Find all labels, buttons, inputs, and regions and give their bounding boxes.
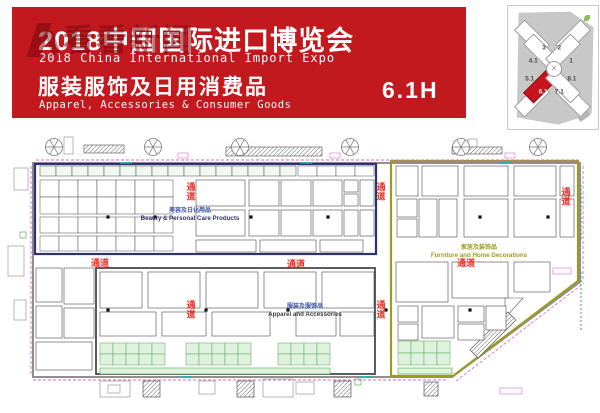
booth-cell — [97, 180, 116, 197]
aisle-label: 通道 — [287, 258, 305, 269]
exit-mark — [20, 232, 26, 238]
aisle-label: 通 — [186, 299, 195, 310]
booth-cell — [126, 343, 139, 354]
structural-column — [546, 215, 549, 218]
facility — [8, 246, 24, 276]
facility — [199, 381, 215, 394]
booth — [249, 210, 279, 236]
booth-cell — [437, 353, 450, 365]
booth-cell — [97, 197, 116, 214]
booth-cell — [238, 343, 251, 354]
facility — [14, 168, 28, 190]
section-label: Beauty & Personal Care Products — [141, 215, 240, 222]
booth-cell — [200, 166, 216, 176]
booth-cell — [437, 341, 450, 353]
booth-cell — [100, 354, 113, 365]
section-label: Furniture and Home Decorations — [431, 252, 528, 259]
door-mark — [178, 153, 188, 158]
booth — [397, 199, 417, 217]
booth-cell — [212, 354, 225, 365]
booth-cell — [88, 166, 104, 176]
booth-cell — [40, 236, 59, 251]
booth — [36, 268, 62, 302]
booth-cell — [238, 354, 251, 365]
door-mark — [330, 153, 340, 158]
booth — [464, 199, 508, 237]
venue-center-plaza: ✕ — [546, 61, 562, 77]
booth — [64, 308, 94, 338]
booth-cell — [225, 343, 238, 354]
door-mark — [500, 388, 522, 394]
booth-cell — [40, 197, 59, 214]
booth-cell — [212, 343, 225, 354]
title-banner: 2018中国国际进口博览会 2018 China International I… — [12, 7, 466, 118]
category-title-cn: 服装服饰及日用消费品 — [38, 71, 268, 101]
booth-cell — [97, 236, 116, 251]
section-label: 美容及日化用品 — [168, 206, 211, 214]
facility — [263, 379, 293, 397]
booth-cell — [113, 343, 126, 354]
aisle-label: 通道 — [91, 257, 109, 268]
minimap-hall-label: 8.1 — [567, 75, 576, 82]
booth — [249, 180, 279, 206]
booth-cell — [291, 343, 304, 354]
minimap-hall-label: 6.1 — [539, 89, 548, 96]
booth-cell — [100, 343, 113, 354]
structural-column — [249, 215, 252, 218]
booth — [344, 210, 358, 236]
expo-floorplan-page: { "banner":{ "title_cn":"2018中国国际进口博览会",… — [0, 0, 600, 413]
structural-column — [106, 215, 109, 218]
booth-cell — [336, 166, 355, 176]
booth-cell — [199, 343, 212, 354]
booth — [36, 306, 62, 338]
booth-cell — [40, 166, 56, 176]
booth-cell — [78, 180, 97, 197]
booth-cell — [139, 343, 152, 354]
booth-cell — [411, 353, 424, 365]
booth-cell — [186, 354, 199, 365]
booth-cell — [152, 354, 165, 365]
aisle-label: 道 — [376, 191, 385, 202]
booth-cell — [59, 236, 78, 251]
booth-cell — [78, 236, 97, 251]
booth-cell — [304, 354, 317, 365]
booth — [464, 166, 508, 196]
booth — [196, 240, 256, 252]
booth-cell — [154, 180, 173, 197]
booth — [340, 312, 374, 336]
aisle-label: 通 — [561, 186, 570, 197]
booth-cell — [304, 343, 317, 354]
facility — [64, 137, 73, 154]
booth-cell — [126, 354, 139, 365]
minimap-hall-label: 7.1 — [555, 89, 564, 96]
booth-cell — [135, 180, 154, 197]
booth-cell — [78, 197, 97, 214]
green-strip — [100, 368, 330, 374]
booth-cell — [116, 197, 135, 214]
booth — [36, 342, 92, 370]
booth-cell — [291, 354, 304, 365]
booth-cell — [59, 217, 78, 233]
minimap-hall-label: 5.1 — [525, 75, 534, 82]
aisle-label: 通 — [376, 299, 385, 310]
booth — [514, 199, 556, 237]
booth — [514, 166, 556, 196]
booth — [397, 219, 417, 237]
booth-cell — [225, 354, 238, 365]
booth — [322, 272, 374, 308]
booth — [486, 306, 506, 330]
booth — [100, 272, 142, 308]
booth — [422, 166, 458, 196]
aisle-label: 通 — [186, 181, 195, 192]
booth — [419, 199, 437, 237]
booth — [422, 306, 454, 338]
booth — [260, 240, 316, 252]
booth-cell — [317, 354, 330, 365]
door-mark — [505, 153, 515, 158]
booth-cell — [186, 343, 199, 354]
booth-cell — [355, 166, 374, 176]
booth-cell — [264, 166, 280, 176]
minimap-hall-label: 4.1 — [529, 58, 538, 65]
green-strip — [398, 368, 452, 374]
booth — [281, 180, 311, 206]
structural-column — [478, 215, 481, 218]
booth — [320, 240, 363, 252]
booth — [281, 210, 311, 236]
booth-cell — [116, 236, 135, 251]
aisle-label: 道 — [186, 309, 195, 320]
minimap-hall-label: 1 — [569, 58, 573, 65]
booth — [458, 324, 484, 340]
booth-cell — [168, 166, 184, 176]
aisle-label: 道 — [561, 196, 570, 207]
floor-plan: 美容及日化用品Beauty & Personal Care Products服装… — [0, 130, 600, 413]
booth-cell — [232, 166, 248, 176]
escalator — [424, 382, 438, 396]
booth — [398, 306, 418, 322]
booth-cell — [152, 166, 168, 176]
booth-cell — [40, 217, 59, 233]
booth-cell — [56, 166, 72, 176]
booth — [344, 194, 358, 206]
watermark-logo-icon — [44, 31, 62, 55]
booth — [100, 312, 156, 336]
facility — [108, 385, 120, 393]
booth-cell — [59, 197, 78, 214]
booth-cell — [184, 166, 200, 176]
aisle-label: 通 — [376, 181, 385, 192]
booth-cell — [136, 166, 152, 176]
aisle-label: 通道 — [457, 257, 475, 268]
booth-cell — [113, 354, 126, 365]
structural-column — [468, 308, 471, 311]
booth — [162, 312, 206, 336]
booth-cell — [116, 180, 135, 197]
booth-cell — [59, 180, 78, 197]
booth — [196, 180, 245, 206]
booth-cell — [152, 343, 165, 354]
minimap-hall-label: 3 — [542, 44, 546, 51]
section-label: 家居及装饰品 — [461, 243, 497, 251]
booth-cell — [278, 354, 291, 365]
category-title-en: Apparel, Accessories & Consumer Goods — [39, 99, 291, 111]
booth-cell — [411, 341, 424, 353]
booth-cell — [154, 236, 173, 251]
booth — [396, 166, 418, 196]
booth — [439, 199, 457, 237]
booth — [212, 312, 270, 336]
escalator — [237, 381, 254, 397]
leaf-icon — [584, 15, 590, 21]
facility — [14, 300, 26, 320]
minimap-hall-label: 2 — [557, 44, 561, 51]
booth-cell — [278, 343, 291, 354]
booth — [264, 272, 316, 308]
booth-cell — [298, 166, 317, 176]
booth — [313, 180, 342, 206]
booth-cell — [317, 166, 336, 176]
booth — [360, 180, 374, 206]
booth — [360, 210, 374, 236]
structural-column — [326, 215, 329, 218]
structural-column — [106, 308, 109, 311]
booth-cell — [424, 341, 437, 353]
hall-code: 6.1H — [382, 77, 439, 104]
escalator — [334, 381, 351, 397]
booth-cell — [116, 217, 135, 233]
booth-cell — [104, 166, 120, 176]
booth-cell — [398, 353, 411, 365]
booth-cell — [317, 343, 330, 354]
booth-cell — [135, 197, 154, 214]
booth — [396, 262, 448, 302]
booth-cell — [135, 236, 154, 251]
booth-cell — [97, 217, 116, 233]
booth-cell — [139, 354, 152, 365]
booth — [514, 262, 550, 292]
venue-minimap: ✕ 324.115.18.16.17.1 — [507, 5, 599, 130]
aisle-label: 道 — [376, 309, 385, 320]
booth-cell — [216, 166, 232, 176]
booth — [64, 268, 94, 304]
booth-cell — [424, 353, 437, 365]
structural-column — [204, 308, 207, 311]
watermark-text: 看看新闻 — [63, 23, 195, 58]
escalator — [143, 381, 160, 397]
booth-cell — [280, 166, 296, 176]
booth-cell — [40, 180, 59, 197]
section-label: 服装及服饰品 — [287, 302, 323, 310]
booth-cell — [199, 354, 212, 365]
booth-cell — [248, 166, 264, 176]
booth-cell — [120, 166, 136, 176]
booth — [206, 272, 258, 308]
booth — [398, 324, 418, 340]
booth-cell — [72, 166, 88, 176]
facility — [296, 382, 314, 394]
section-label: Apparel and Accessories — [268, 311, 342, 318]
booth — [344, 180, 358, 192]
aisle-label: 道 — [186, 191, 195, 202]
booth — [313, 210, 342, 236]
booth-cell — [78, 217, 97, 233]
watermark: 看看新闻 — [32, 15, 195, 60]
booth-cell — [398, 341, 411, 353]
door-mark — [553, 268, 571, 274]
air-duct — [84, 145, 124, 153]
